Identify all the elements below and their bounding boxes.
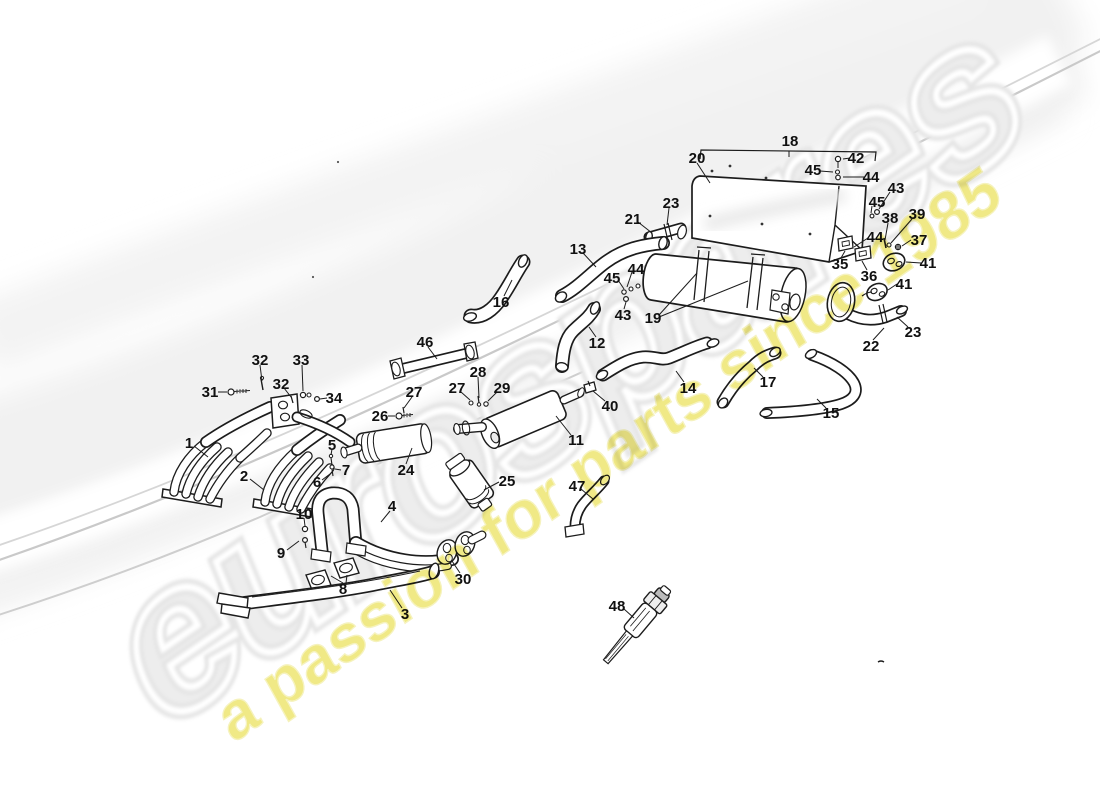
svg-text:9: 9 <box>277 545 285 562</box>
svg-text:20: 20 <box>689 150 706 167</box>
svg-text:21: 21 <box>625 211 642 228</box>
svg-text:33: 33 <box>293 352 310 369</box>
svg-text:26: 26 <box>372 408 389 425</box>
svg-text:27: 27 <box>449 380 466 397</box>
svg-text:23: 23 <box>663 195 680 212</box>
svg-text:46: 46 <box>417 334 434 351</box>
svg-text:10: 10 <box>296 506 313 523</box>
svg-text:7: 7 <box>342 462 350 479</box>
svg-text:24: 24 <box>398 462 415 479</box>
svg-text:19: 19 <box>645 310 662 327</box>
svg-text:32: 32 <box>252 352 269 369</box>
svg-text:34: 34 <box>326 390 343 407</box>
svg-text:48: 48 <box>609 598 626 615</box>
svg-text:23: 23 <box>905 324 922 341</box>
svg-text:2: 2 <box>240 468 248 485</box>
svg-text:45: 45 <box>869 194 886 211</box>
svg-text:6: 6 <box>313 474 321 491</box>
svg-text:44: 44 <box>628 261 645 278</box>
svg-text:18: 18 <box>782 133 799 150</box>
svg-text:44: 44 <box>863 169 880 186</box>
svg-text:4: 4 <box>388 498 397 515</box>
svg-text:29: 29 <box>494 380 511 397</box>
svg-text:45: 45 <box>604 270 621 287</box>
svg-text:27: 27 <box>406 384 423 401</box>
svg-text:22: 22 <box>863 338 880 355</box>
svg-text:1: 1 <box>185 435 193 452</box>
svg-text:32: 32 <box>273 376 290 393</box>
svg-text:45: 45 <box>805 162 822 179</box>
svg-text:15: 15 <box>823 405 840 422</box>
svg-text:12: 12 <box>589 335 606 352</box>
svg-text:16: 16 <box>493 294 510 311</box>
svg-text:5: 5 <box>328 437 336 454</box>
svg-text:43: 43 <box>888 180 905 197</box>
svg-text:42: 42 <box>848 150 865 167</box>
svg-text:28: 28 <box>470 364 487 381</box>
svg-text:43: 43 <box>615 307 632 324</box>
svg-text:31: 31 <box>202 384 219 401</box>
svg-text:13: 13 <box>570 241 587 258</box>
